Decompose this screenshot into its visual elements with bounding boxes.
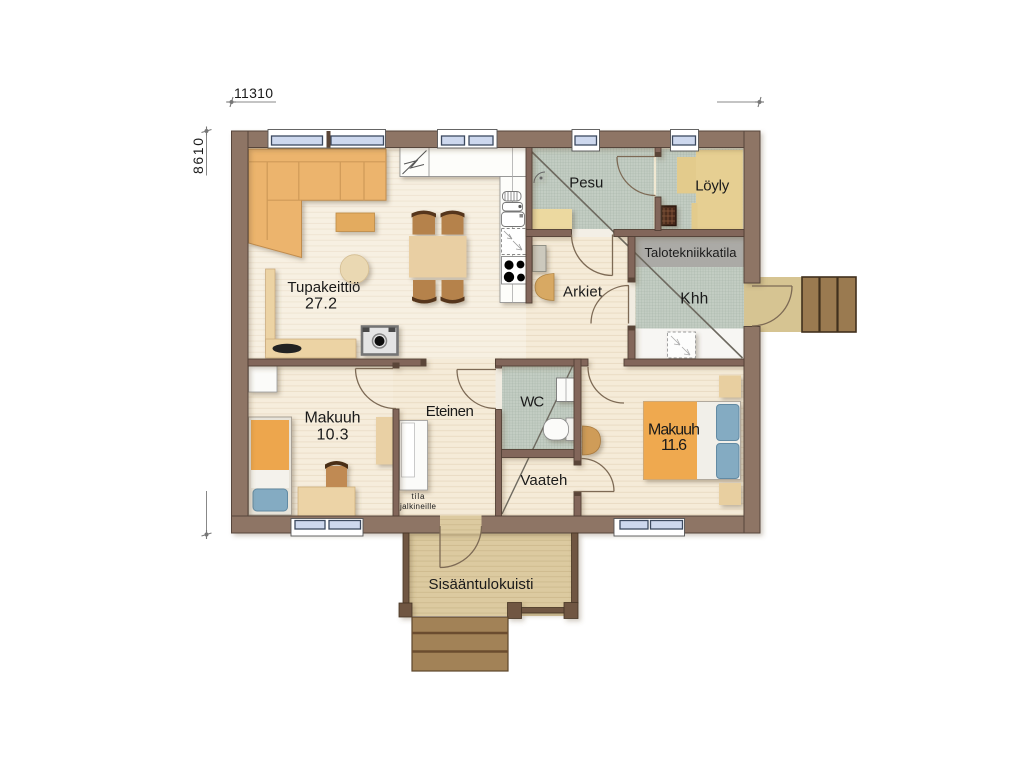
svg-text:8610: 8610	[190, 138, 206, 174]
svg-text:27.2: 27.2	[305, 296, 337, 313]
svg-text:tila: tila	[412, 492, 426, 501]
svg-text:Pesu: Pesu	[569, 175, 603, 192]
svg-text:10.3: 10.3	[317, 427, 349, 444]
svg-text:Khh: Khh	[680, 291, 708, 308]
svg-text:Sisääntulokuisti: Sisääntulokuisti	[429, 576, 534, 593]
svg-text:Makuuh: Makuuh	[648, 422, 700, 439]
svg-text:Eteinen: Eteinen	[426, 403, 474, 420]
svg-text:Vaateh: Vaateh	[520, 472, 567, 489]
svg-text:Talotekniikkatila: Talotekniikkatila	[645, 245, 738, 260]
svg-text:11.6: 11.6	[661, 437, 687, 454]
svg-text:Tupakeittiö: Tupakeittiö	[287, 279, 360, 296]
svg-text:WC: WC	[520, 394, 544, 411]
svg-text:jalkineille: jalkineille	[399, 502, 437, 511]
svg-text:Makuuh: Makuuh	[305, 410, 361, 427]
svg-text:11310: 11310	[234, 85, 273, 101]
svg-text:Arkiet: Arkiet	[563, 284, 603, 301]
svg-text:Löyly: Löyly	[695, 178, 730, 195]
